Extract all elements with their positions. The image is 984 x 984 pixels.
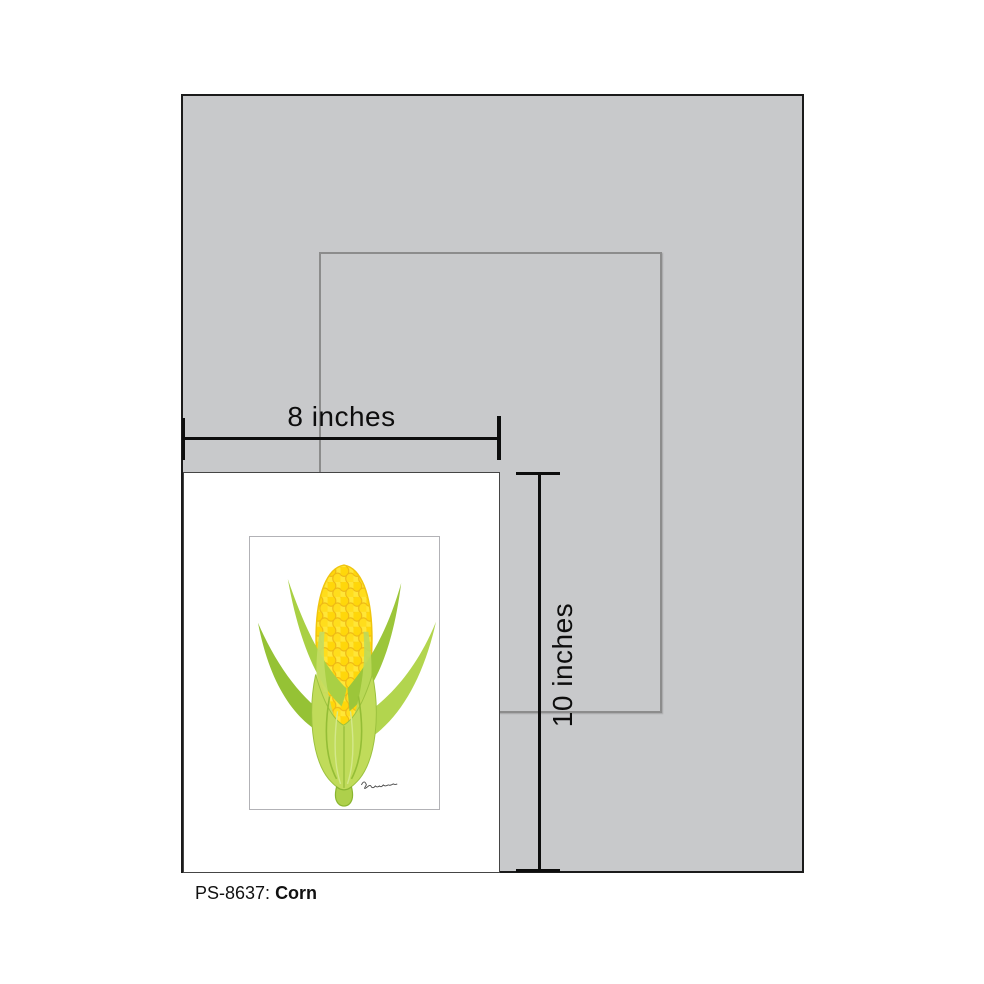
height-measure-line — [538, 474, 541, 872]
height-measure-tick-bottom — [516, 869, 560, 872]
height-measure-label: 10 inches — [547, 585, 579, 745]
corn-stem — [336, 787, 353, 806]
width-measure-line — [184, 437, 499, 440]
height-measure-tick-top — [516, 472, 560, 475]
product-code: PS-8637: — [195, 883, 270, 903]
print-mat — [183, 472, 500, 873]
product-size-diagram: 8 inches 10 inches PS-8637:Corn — [0, 0, 984, 984]
product-caption: PS-8637:Corn — [195, 883, 317, 904]
art-window — [249, 536, 440, 810]
artist-signature — [361, 782, 397, 789]
corn-illustration — [250, 537, 439, 809]
product-title: Corn — [275, 883, 317, 903]
width-measure-label: 8 inches — [184, 401, 499, 433]
